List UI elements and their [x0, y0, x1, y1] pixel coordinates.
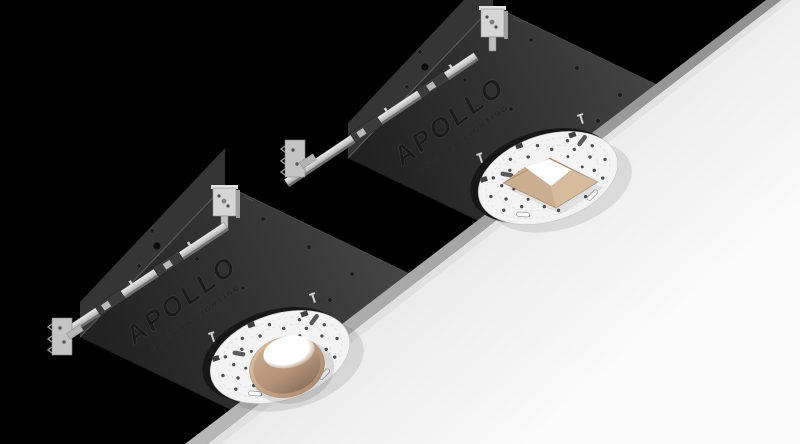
scene-svg: APOLLO BY NORA LIGHTING [0, 0, 800, 444]
product-render: APOLLO BY NORA LIGHTING [0, 0, 800, 444]
